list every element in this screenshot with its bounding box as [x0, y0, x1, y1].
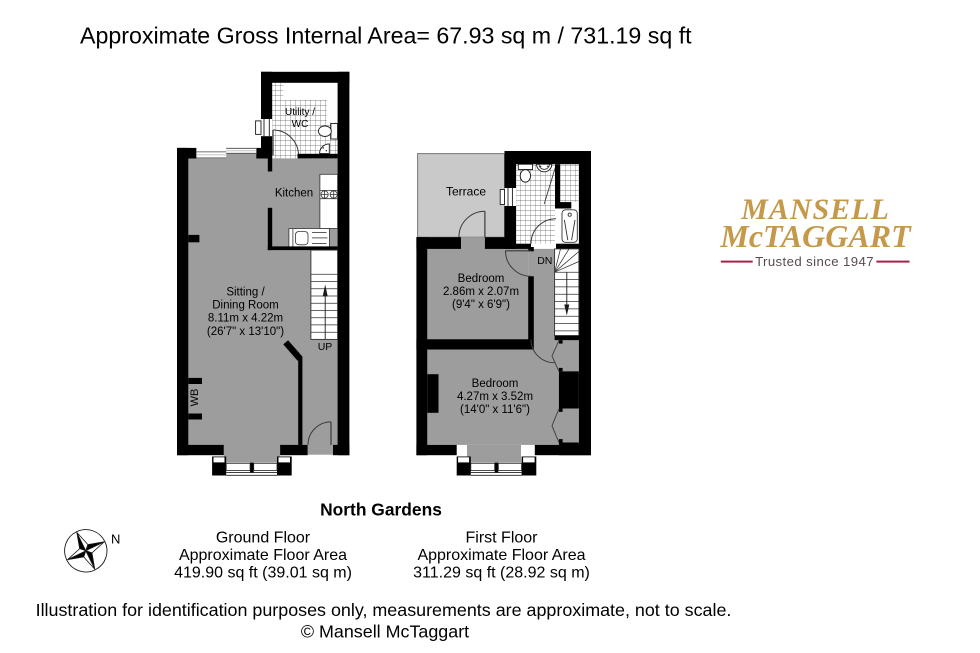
svg-text:Ground Floor: Ground Floor: [216, 530, 311, 547]
svg-text:Trusted since 1947: Trusted since 1947: [755, 254, 874, 269]
svg-text:First Floor: First Floor: [466, 530, 539, 547]
svg-text:311.29 sq ft (28.92 sq m): 311.29 sq ft (28.92 sq m): [413, 565, 590, 582]
svg-text:DN: DN: [537, 255, 552, 267]
svg-text:2.86m x 2.07m: 2.86m x 2.07m: [443, 286, 519, 298]
svg-text:419.90 sq ft (39.01 sq m): 419.90 sq ft (39.01 sq m): [174, 565, 352, 582]
svg-text:McTAGGART: McTAGGART: [719, 218, 912, 254]
svg-text:(26'7" x 13'10"): (26'7" x 13'10"): [207, 326, 284, 338]
svg-text:Approximate Gross Internal Are: Approximate Gross Internal Area= 67.93 s…: [80, 23, 692, 49]
svg-text:Bedroom: Bedroom: [458, 273, 505, 285]
svg-text:4.27m x 3.52m: 4.27m x 3.52m: [457, 391, 533, 403]
svg-text:Approximate Floor Area: Approximate Floor Area: [417, 547, 585, 564]
svg-text:WB: WB: [189, 389, 201, 407]
svg-text:Kitchen: Kitchen: [275, 188, 313, 200]
svg-text:8.11m x 4.22m: 8.11m x 4.22m: [208, 313, 283, 325]
svg-text:North Gardens: North Gardens: [320, 500, 442, 520]
svg-text:Utility /: Utility /: [285, 107, 315, 118]
svg-text:WC: WC: [292, 119, 309, 130]
svg-text:© Mansell McTaggart: © Mansell McTaggart: [301, 622, 469, 642]
svg-text:Bedroom: Bedroom: [472, 378, 519, 390]
svg-text:(9'4" x 6'9"): (9'4" x 6'9"): [452, 299, 510, 311]
svg-text:(14'0" x 11'6"): (14'0" x 11'6"): [460, 404, 530, 416]
svg-text:Dining Room: Dining Room: [212, 300, 278, 312]
svg-text:Illustration for identificatio: Illustration for identification purposes…: [36, 600, 732, 620]
svg-text:Approximate Floor Area: Approximate Floor Area: [179, 547, 347, 564]
svg-text:Terrace: Terrace: [446, 184, 486, 198]
svg-text:N: N: [111, 532, 120, 547]
svg-text:UP: UP: [318, 341, 333, 353]
svg-text:Sitting /: Sitting /: [226, 286, 265, 298]
